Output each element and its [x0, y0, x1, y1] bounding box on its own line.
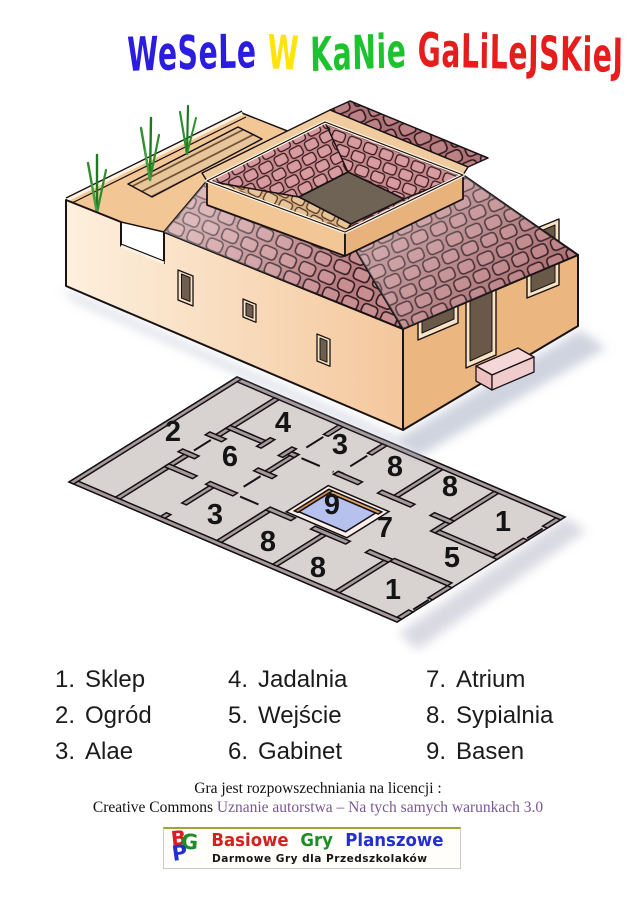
logo-banner[interactable]: B G P BasioweGryPlanszowe Darmowe Gry dl…	[163, 827, 461, 869]
house-illustration	[60, 101, 606, 458]
license-line1: Gra jest rozpowszechniania na licencji :	[0, 780, 636, 798]
room-number: 1	[495, 506, 511, 538]
legend-number: 2.	[55, 698, 85, 734]
room-number: 1	[385, 574, 401, 606]
legend-label: Sypialnia	[456, 702, 553, 729]
legend-item: 3.Alae	[55, 734, 152, 770]
legend-item: 9.Basen	[426, 734, 553, 770]
legend-item: 6.Gabinet	[228, 734, 347, 770]
logo-word: Basiowe	[211, 830, 288, 851]
room-number: 9	[324, 489, 340, 521]
legend-label: Atrium	[456, 666, 525, 693]
legend-label: Sklep	[85, 666, 145, 693]
legend-number: 1.	[55, 662, 85, 698]
title-word: GaLiLeJSKieJ	[417, 23, 624, 84]
legend-label: Basen	[456, 738, 524, 765]
room-number: 8	[260, 526, 276, 558]
page-title: WeSeLe W KaNie GaLiLeJSKieJ	[127, 26, 509, 81]
legend-label: Wejście	[258, 702, 342, 729]
legend-number: 3.	[55, 734, 85, 770]
room-number: 7	[377, 512, 393, 544]
room-number: 8	[442, 471, 458, 503]
room-number: 4	[275, 407, 291, 439]
title-word: KaNie	[310, 24, 407, 83]
window-opening	[320, 338, 327, 362]
logo-word: Gry	[300, 830, 333, 851]
legend-column: 1.Sklep 2.Ogród 3.Alae	[55, 662, 152, 770]
legend-number: 4.	[228, 662, 258, 698]
room-number: 6	[222, 441, 238, 473]
legend-number: 8.	[426, 698, 456, 734]
legend-item: 7.Atrium	[426, 662, 553, 698]
legend-item: 1.Sklep	[55, 662, 152, 698]
room-number: 8	[310, 552, 326, 584]
logo-word: Planszowe	[346, 830, 444, 851]
license-link[interactable]: Uznanie autorstwa – Na tych samych warun…	[217, 799, 543, 816]
legend-column: 7.Atrium 8.Sypialnia 9.Basen	[426, 662, 553, 770]
title-word: WeSeLe	[127, 24, 257, 83]
window-opening	[246, 303, 253, 318]
title-word: W	[267, 25, 300, 82]
room-number: 5	[444, 542, 460, 574]
legend-number: 5.	[228, 698, 258, 734]
legend-label: Alae	[85, 738, 133, 765]
license-prefix: Creative Commons	[93, 799, 217, 816]
logo-monogram: B G P	[169, 829, 207, 869]
room-number: 3	[332, 429, 348, 461]
room-number: 8	[387, 451, 403, 483]
legend-item: 5.Wejście	[228, 698, 347, 734]
legend-number: 6.	[228, 734, 258, 770]
room-number: 2	[165, 416, 181, 448]
logo-title: BasioweGryPlanszowe	[208, 830, 455, 851]
room-number: 3	[207, 499, 223, 531]
legend-item: 8.Sypialnia	[426, 698, 553, 734]
scene-svg: 2 4 3 8 8 1 6 9 7 3 8 8 1 5	[0, 85, 636, 655]
legend-column: 4.Jadalnia 5.Wejście 6.Gabinet	[228, 662, 347, 770]
legend-number: 9.	[426, 734, 456, 770]
legend-label: Gabinet	[258, 738, 342, 765]
legend-item: 2.Ogród	[55, 698, 152, 734]
page: { "title": { "words": [ {"text": "WeSeLe…	[0, 0, 636, 900]
window-opening	[182, 274, 191, 302]
legend-item: 4.Jadalnia	[228, 662, 347, 698]
logo-subtitle: Darmowe Gry dla Przedszkolaków	[212, 852, 428, 865]
legend-label: Ogród	[85, 702, 152, 729]
legend-number: 7.	[426, 662, 456, 698]
monogram-p: P	[170, 840, 189, 866]
license-line2: Creative Commons Uznanie autorstwa – Na …	[0, 799, 636, 817]
legend-label: Jadalnia	[258, 666, 347, 693]
